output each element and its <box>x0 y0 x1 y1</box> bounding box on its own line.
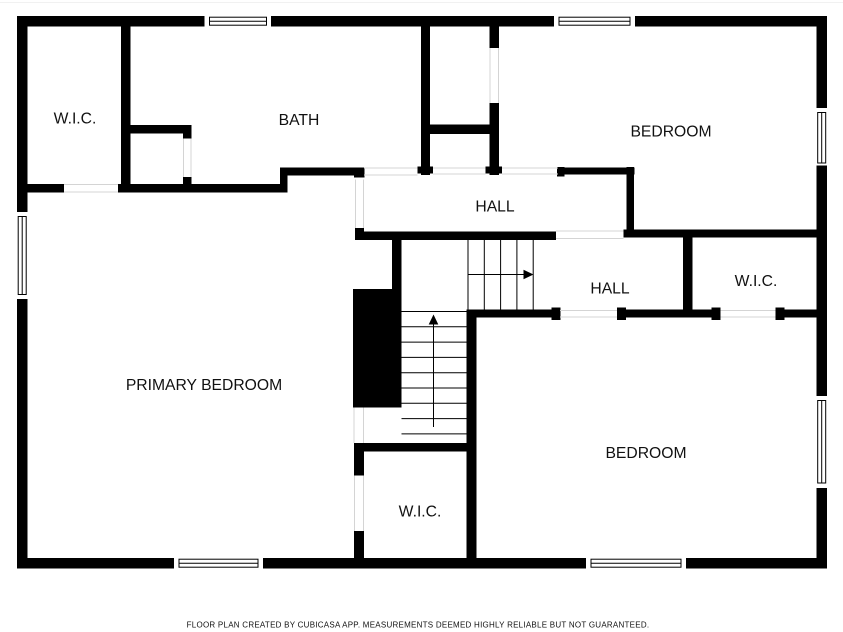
svg-text:BEDROOM: BEDROOM <box>630 124 711 141</box>
svg-text:BEDROOM: BEDROOM <box>605 445 686 462</box>
svg-text:PRIMARY BEDROOM: PRIMARY BEDROOM <box>126 377 282 394</box>
svg-text:W.I.C.: W.I.C. <box>399 504 442 521</box>
svg-text:HALL: HALL <box>590 281 630 298</box>
svg-text:W.I.C.: W.I.C. <box>54 111 97 128</box>
svg-text:W.I.C.: W.I.C. <box>735 273 778 290</box>
svg-text:HALL: HALL <box>475 199 515 216</box>
svg-text:BATH: BATH <box>279 112 320 129</box>
svg-text:FLOOR PLAN CREATED BY CUBICASA: FLOOR PLAN CREATED BY CUBICASA APP. MEAS… <box>187 621 650 630</box>
